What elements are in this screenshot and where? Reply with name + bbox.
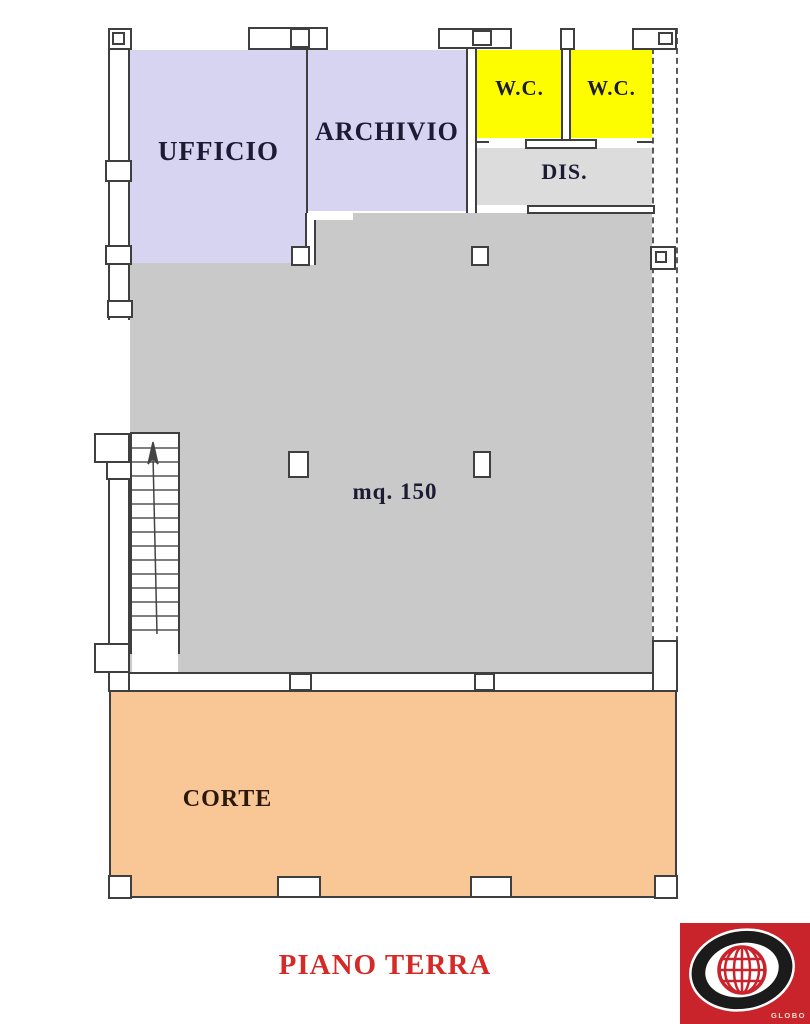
- column: [470, 876, 512, 898]
- top-wall-corner-right-pillar: [632, 28, 677, 50]
- room-label-archivio: ARCHIVIO: [307, 117, 467, 147]
- column: [473, 451, 491, 478]
- area-label-mq150: mq. 150: [300, 479, 490, 505]
- column: [289, 673, 312, 691]
- pillar-core: [290, 28, 310, 48]
- room-label-wc-left: W.C.: [477, 76, 562, 101]
- left-wall-pillar-3: [106, 460, 132, 480]
- column: [288, 451, 309, 478]
- left-wall-buttress-bottom: [94, 643, 130, 673]
- top-wall-wc-divider-pillar: [560, 28, 575, 50]
- pillar-core: [655, 251, 667, 263]
- wall-wc-dis-stub-left: [477, 141, 489, 143]
- pillar-core: [658, 32, 673, 45]
- corte-right-wall: [675, 692, 677, 897]
- pillar-core: [112, 32, 125, 45]
- right-wall-pillar: [650, 246, 676, 270]
- left-wall-pillar-1: [105, 160, 132, 182]
- right-wall-corte-corner: [652, 640, 678, 692]
- pillar-core: [472, 30, 492, 46]
- globe-icon: GLOBO: [680, 923, 810, 1024]
- wall-dis-main: [527, 205, 655, 214]
- left-wall-foot: [107, 300, 133, 318]
- room-label-corte: CORTE: [150, 786, 305, 813]
- wall-wc-dis-stub-right: [637, 141, 653, 143]
- wall-wc-wc: [561, 45, 571, 145]
- floor-plan-canvas: UFFICIO ARCHIVIO W.C. W.C. DIS. mq. 150 …: [0, 0, 810, 1024]
- wall-archivio-wc: [466, 45, 477, 213]
- room-main-hall-right: [307, 213, 652, 673]
- column: [277, 876, 321, 898]
- right-wall: [652, 28, 678, 692]
- column: [474, 673, 495, 691]
- stairs-icon: [132, 434, 178, 652]
- wall-wc-dis-bar: [525, 139, 597, 149]
- globo-logo: GLOBO: [680, 923, 810, 1024]
- corte-top-wall: [108, 690, 678, 692]
- column: [471, 246, 489, 266]
- left-wall-pillar-2: [105, 245, 132, 265]
- corte-left-wall: [109, 692, 111, 897]
- room-label-ufficio: UFFICIO: [130, 136, 307, 167]
- top-wall-corner-left-pillar: [108, 28, 132, 50]
- room-label-dis: DIS.: [477, 159, 652, 185]
- top-wall-pillar-c: [438, 28, 512, 49]
- main-hall-bottom-wall: [130, 672, 653, 674]
- corte-bottom-wall: [108, 896, 678, 898]
- up-arrow-icon: [148, 442, 158, 634]
- column: [291, 246, 310, 266]
- stair-corridor: [132, 652, 178, 672]
- top-wall-pillar-b: [248, 27, 328, 50]
- room-label-wc-right: W.C.: [571, 76, 652, 101]
- column: [654, 875, 678, 899]
- door-gap-archivio: [309, 211, 353, 220]
- staircase: [130, 432, 180, 654]
- column: [108, 875, 132, 899]
- logo-text: GLOBO: [771, 1011, 806, 1020]
- page-title: PIANO TERRA: [230, 949, 540, 982]
- left-wall-buttress-top: [94, 433, 130, 463]
